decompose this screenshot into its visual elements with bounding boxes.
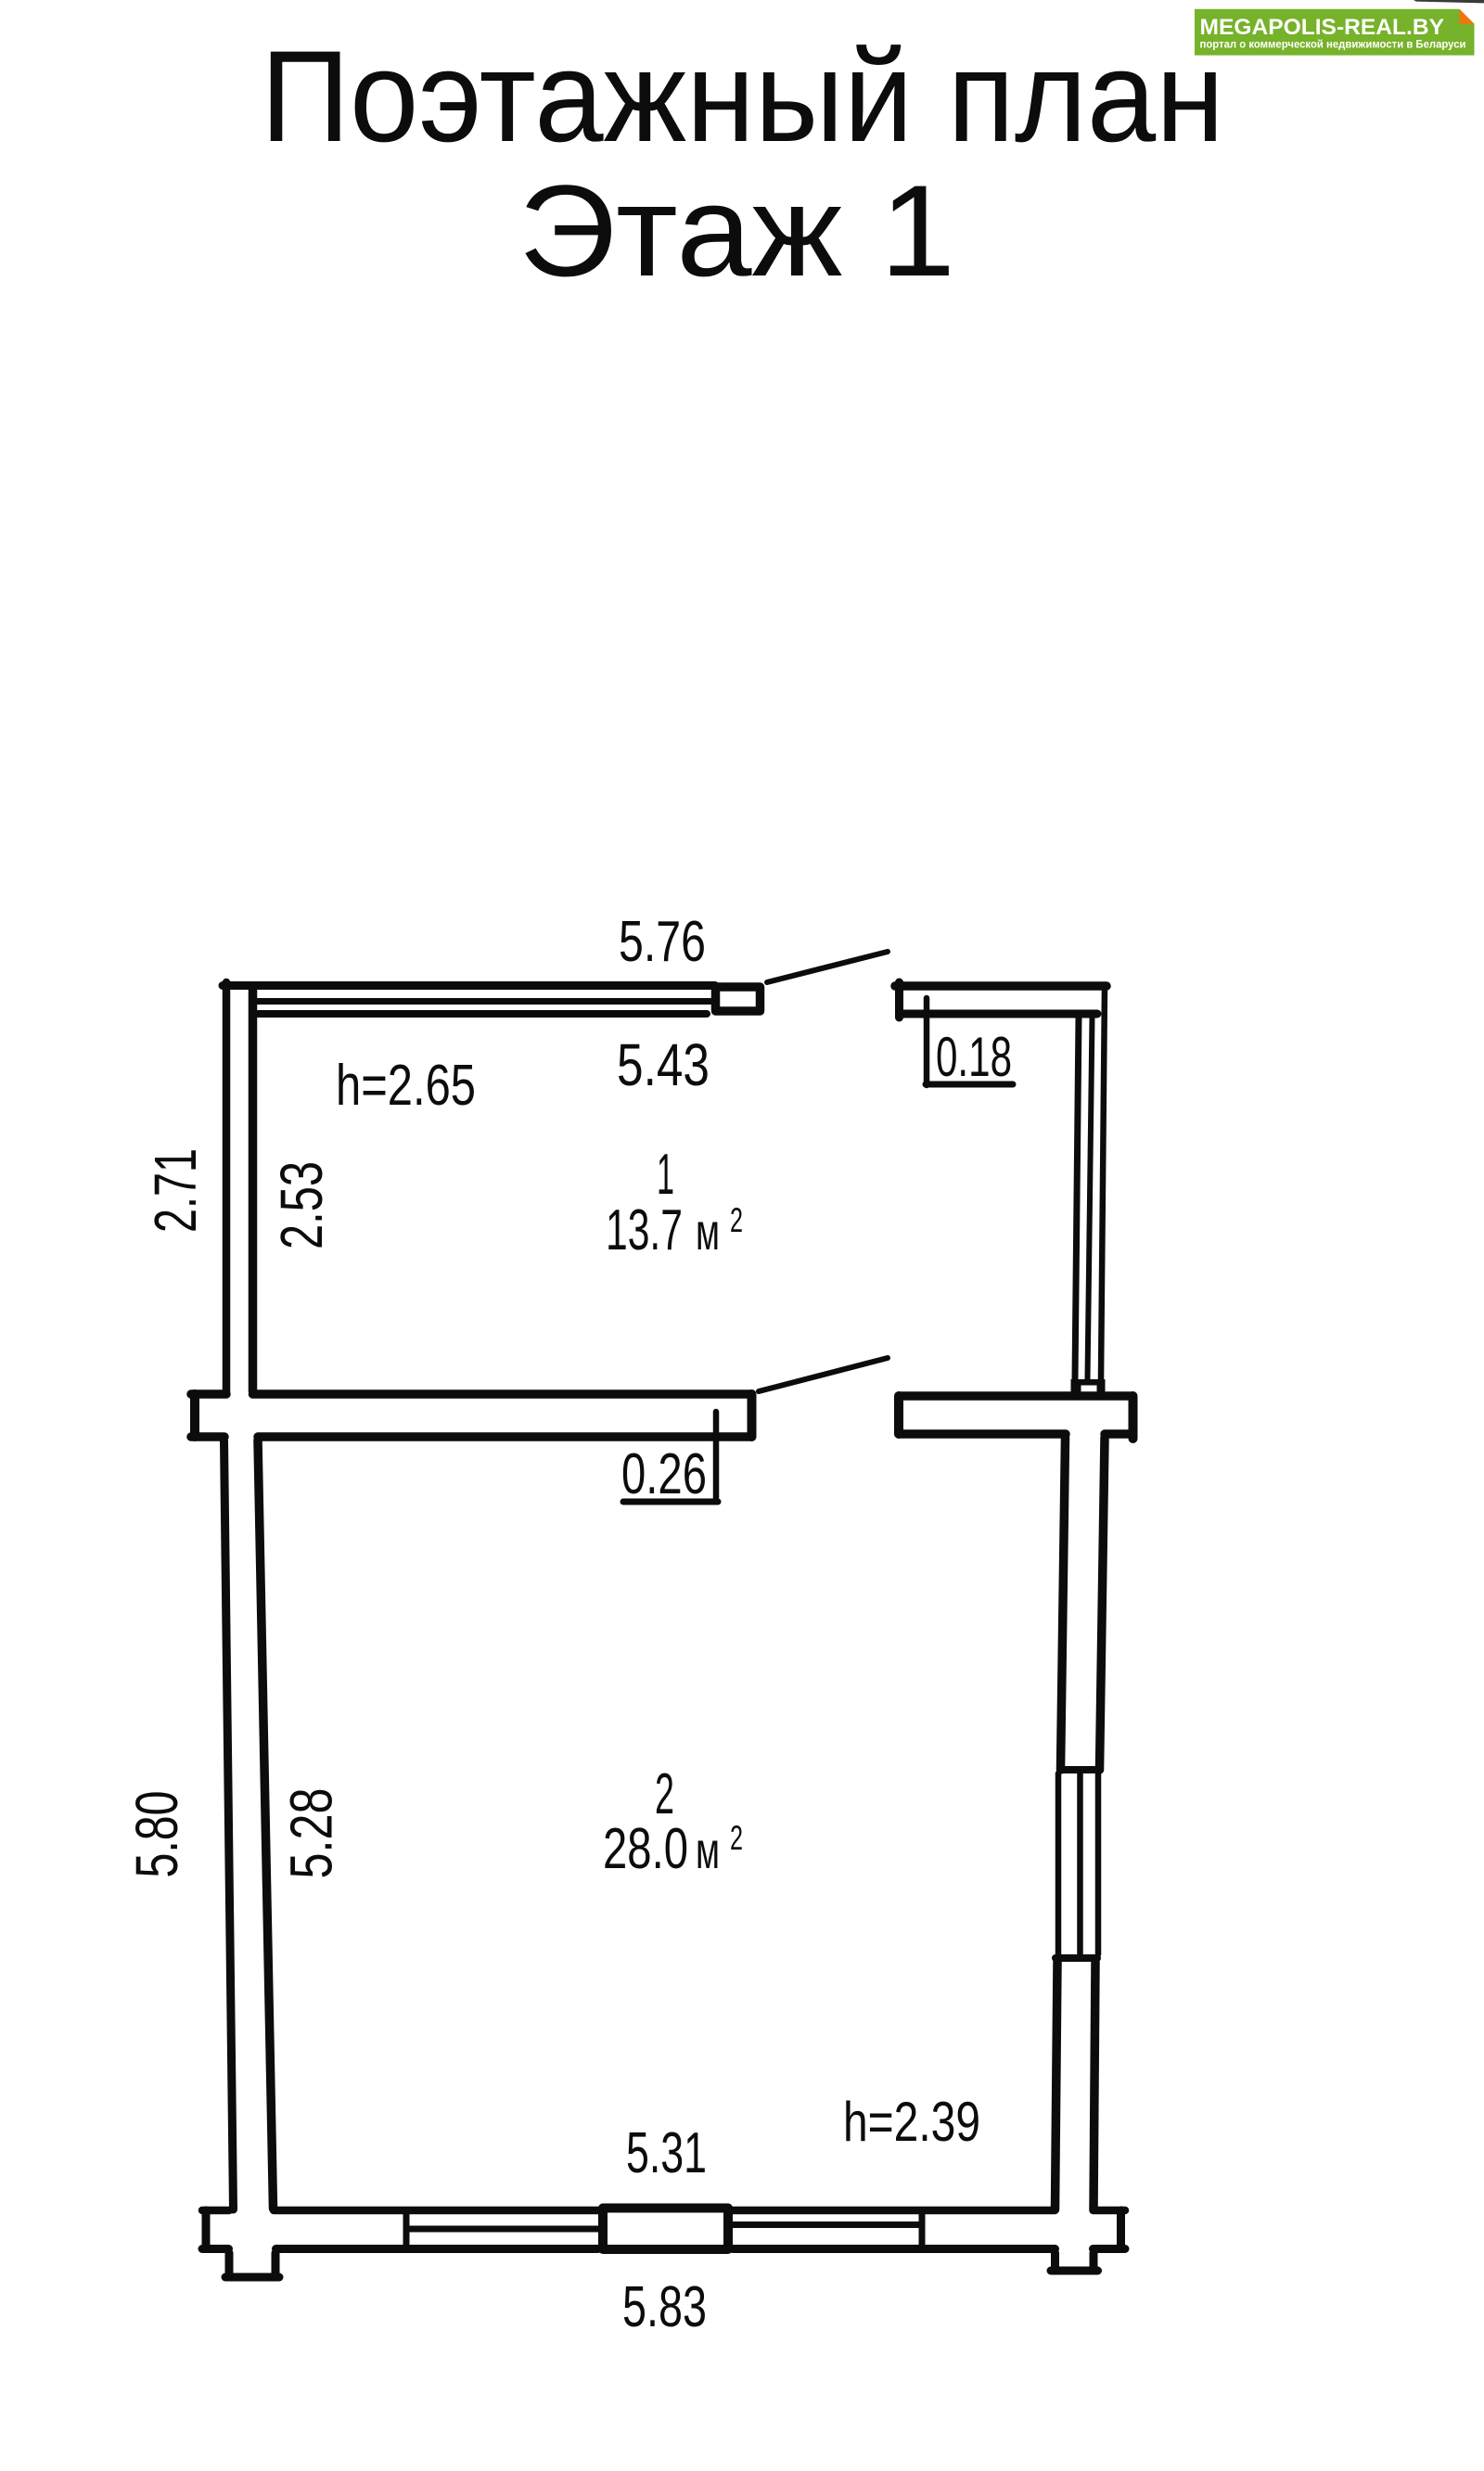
svg-text:0.18: 0.18 xyxy=(936,1026,1012,1088)
svg-text:0.26: 0.26 xyxy=(621,1442,707,1506)
svg-text:м: м xyxy=(696,1821,720,1879)
svg-text:2: 2 xyxy=(730,1201,743,1239)
svg-text:портал о коммерческой недвижим: портал о коммерческой недвижимости в Бел… xyxy=(1200,38,1466,51)
svg-text:28.0: 28.0 xyxy=(603,1817,688,1881)
svg-text:h=2.65: h=2.65 xyxy=(336,1054,476,1118)
svg-text:5.80: 5.80 xyxy=(123,1791,190,1878)
svg-text:м: м xyxy=(696,1202,720,1261)
svg-text:2.53: 2.53 xyxy=(268,1161,335,1249)
svg-text:5.76: 5.76 xyxy=(619,910,706,974)
svg-text:5.83: 5.83 xyxy=(622,2275,707,2339)
svg-text:2: 2 xyxy=(730,1819,743,1857)
svg-text:Этаж 1: Этаж 1 xyxy=(518,158,955,303)
svg-text:1: 1 xyxy=(657,1143,674,1207)
svg-text:Поэтажный план: Поэтажный план xyxy=(261,23,1224,169)
svg-text:2.71: 2.71 xyxy=(142,1148,209,1233)
svg-text:MEGAPOLIS-REAL.BY: MEGAPOLIS-REAL.BY xyxy=(1200,15,1445,40)
svg-text:5.43: 5.43 xyxy=(617,1031,710,1098)
svg-text:5.28: 5.28 xyxy=(278,1788,345,1879)
svg-text:h=2.39: h=2.39 xyxy=(843,2091,980,2153)
svg-text:13.7: 13.7 xyxy=(606,1198,683,1262)
svg-text:5.31: 5.31 xyxy=(626,2121,707,2185)
